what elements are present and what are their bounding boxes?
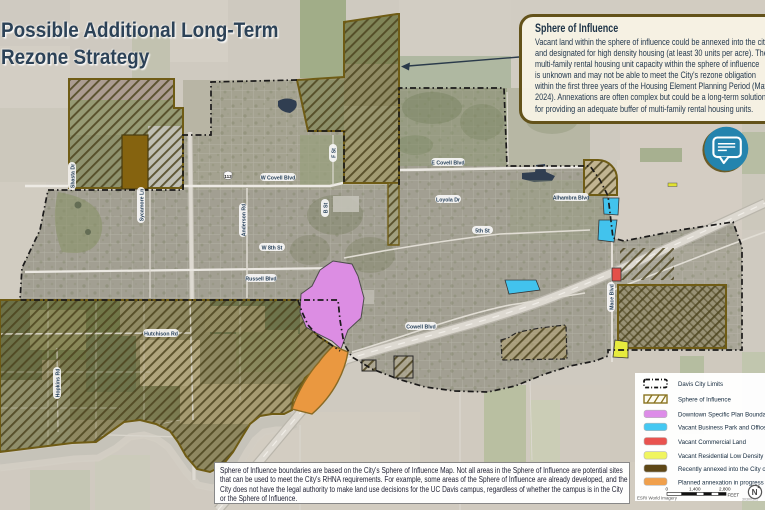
svg-text:Davis City Limits: Davis City Limits bbox=[678, 381, 723, 388]
svg-text:1,400: 1,400 bbox=[689, 487, 701, 492]
svg-text:Sphere of Influence: Sphere of Influence bbox=[678, 397, 731, 404]
svg-text:Vacant Business Park and Offic: Vacant Business Park and Office La bbox=[678, 425, 765, 432]
svg-text:Vacant Commercial Land: Vacant Commercial Land bbox=[678, 439, 746, 446]
svg-text:Planned annexation in progress: Planned annexation in progress bbox=[678, 479, 764, 486]
svg-text:Recently annexed into the City: Recently annexed into the City of D bbox=[678, 466, 765, 473]
svg-text:Vacant Residential Low Density: Vacant Residential Low Density La bbox=[678, 453, 765, 460]
svg-text:30300101: 30300101 bbox=[742, 498, 758, 501]
svg-text:ESRI World Imagery: ESRI World Imagery bbox=[637, 496, 678, 501]
svg-text:0: 0 bbox=[666, 487, 669, 492]
svg-text:2,800: 2,800 bbox=[719, 487, 731, 492]
svg-text:N: N bbox=[752, 488, 758, 497]
svg-text:FEET: FEET bbox=[728, 493, 740, 498]
svg-text:Downtown Specific Plan Boundar: Downtown Specific Plan Boundary bbox=[678, 412, 765, 419]
